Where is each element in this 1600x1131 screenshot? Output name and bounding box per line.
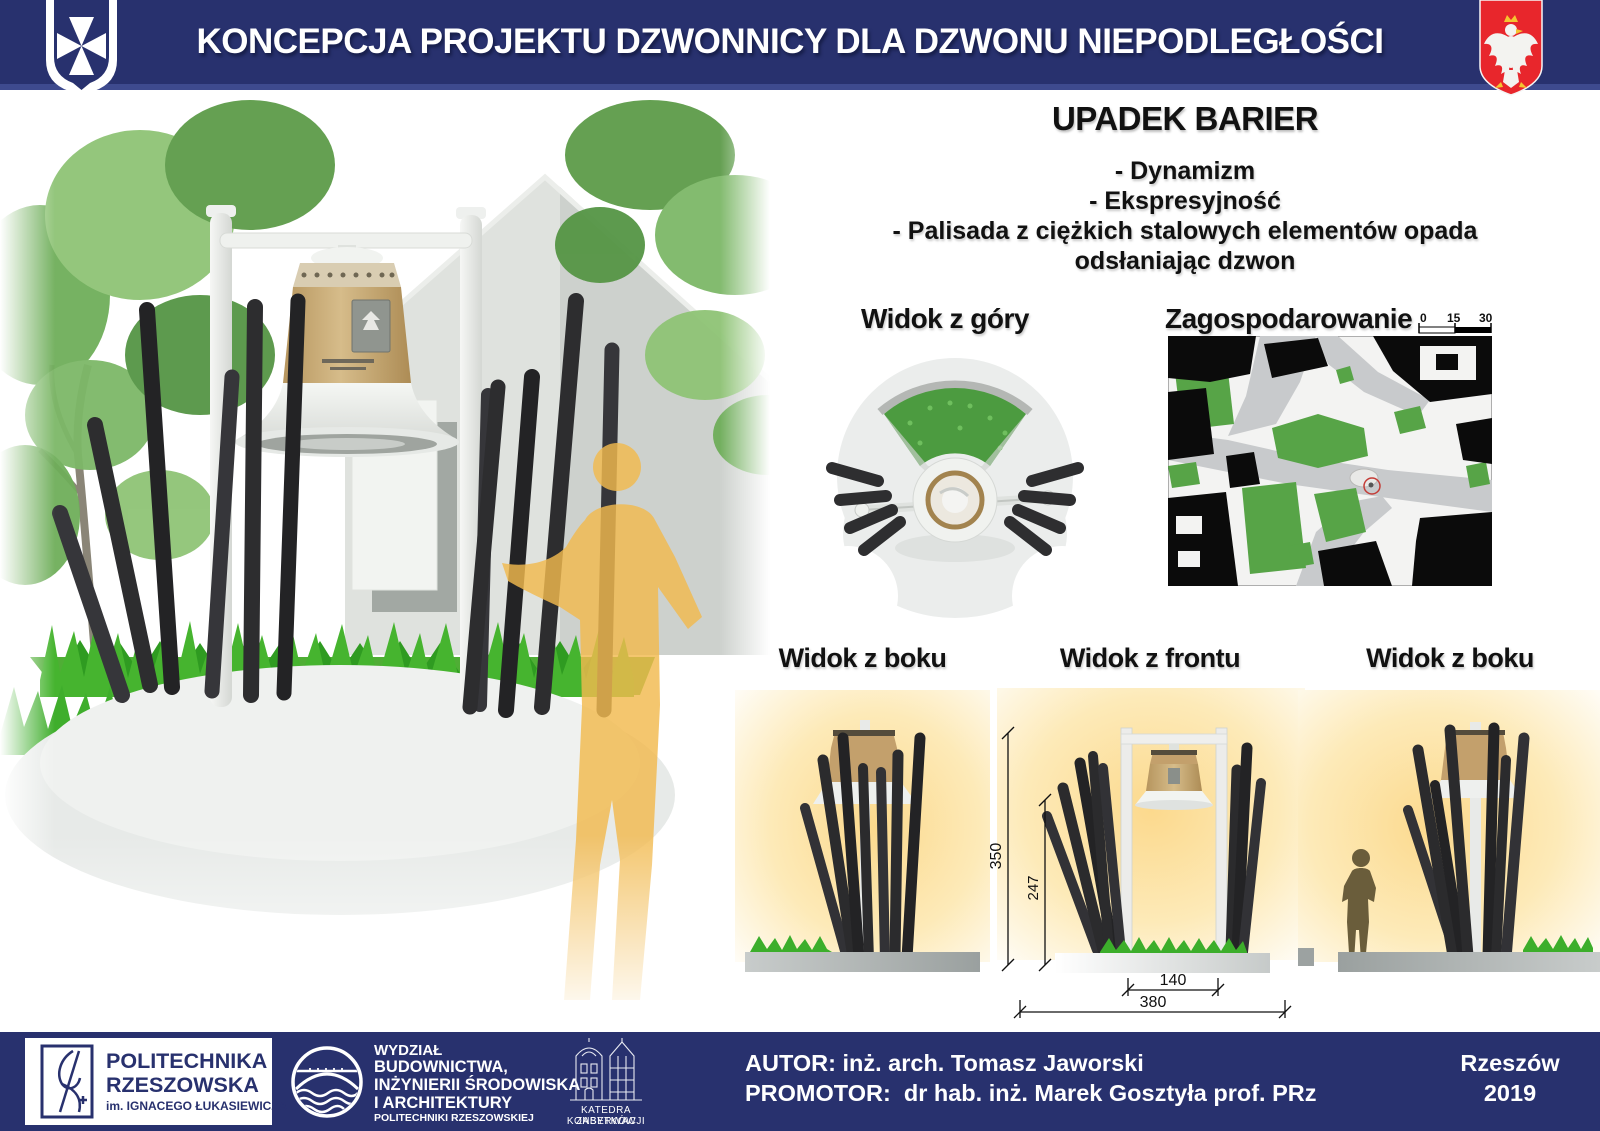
rzeszow-shield-icon bbox=[44, 0, 119, 102]
top-view-label: Widok z góry bbox=[800, 303, 1090, 335]
faculty-line3: INŻYNIERII ŚRODOWISKA bbox=[374, 1077, 580, 1094]
faculty-line1: WYDZIAŁ bbox=[374, 1043, 442, 1058]
site-plan-map bbox=[1168, 336, 1492, 586]
politechnika-rzeszowska-logo-icon bbox=[39, 1044, 97, 1120]
university-name-line1: POLITECHNIKA bbox=[106, 1051, 267, 1073]
dim-380: 380 bbox=[1140, 994, 1167, 1011]
fade-left bbox=[0, 95, 55, 1025]
front-view-label: Widok z frontu bbox=[995, 643, 1305, 674]
front-view-image: 350 247 140 380 bbox=[985, 688, 1305, 1023]
polish-eagle-icon bbox=[1477, 0, 1545, 98]
svg-text:0: 0 bbox=[1420, 311, 1427, 325]
dim-140: 140 bbox=[1160, 972, 1187, 989]
dim-247: 247 bbox=[1025, 875, 1042, 900]
department-line2: ZABYTKÓW bbox=[551, 1116, 661, 1127]
concept-bullets: - Dynamizm - Ekspresyjność - Palisada z … bbox=[875, 156, 1495, 276]
main-render-image bbox=[0, 95, 770, 1025]
map-scale-bar: 0 15 30 bbox=[1416, 310, 1498, 338]
side-view-left-image bbox=[735, 690, 990, 985]
concept-title: UPADEK BARIER bbox=[770, 100, 1600, 138]
faculty-line2: BUDOWNICTWA, bbox=[374, 1059, 508, 1076]
side-view-left-label: Widok z boku bbox=[735, 643, 990, 674]
dim-350: 350 bbox=[988, 843, 1005, 870]
city: Rzeszów bbox=[1445, 1048, 1575, 1078]
poster: KONCEPCJA PROJEKTU DZWONNICY DLA DZWONU … bbox=[0, 0, 1600, 1131]
page-title: KONCEPCJA PROJEKTU DZWONNICY DLA DZWONU … bbox=[150, 22, 1430, 62]
svg-text:15: 15 bbox=[1447, 311, 1461, 325]
place-and-year: Rzeszów 2019 bbox=[1445, 1048, 1575, 1108]
site-plan-label: Zagospodarowanie bbox=[1165, 303, 1412, 335]
svg-text:30: 30 bbox=[1479, 311, 1493, 325]
department-logo-icon bbox=[558, 1038, 654, 1104]
top-view-image bbox=[800, 348, 1110, 628]
faculty-logo-icon bbox=[288, 1043, 366, 1121]
bullet-palisada: - Palisada z ciężkich stalowych elementó… bbox=[875, 216, 1495, 276]
fade-bottom bbox=[0, 835, 770, 1025]
university-name-line3: im. IGNACEGO ŁUKASIEWICZA bbox=[106, 1100, 287, 1112]
promotor-line: PROMOTOR: dr hab. inż. Marek Gosztyła pr… bbox=[745, 1080, 1316, 1107]
faculty-line5: POLITECHNIKI RZESZOWSKIEJ bbox=[374, 1113, 534, 1124]
faculty-line4: I ARCHITEKTURY bbox=[374, 1095, 512, 1112]
side-view-right-image bbox=[1298, 690, 1600, 985]
year: 2019 bbox=[1445, 1078, 1575, 1108]
author-line: AUTOR: inż. arch. Tomasz Jaworski bbox=[745, 1050, 1144, 1077]
side-view-right-label: Widok z boku bbox=[1300, 643, 1600, 674]
university-name-line2: RZESZOWSKA bbox=[106, 1075, 259, 1097]
bullet-ekspresyjnosc: - Ekspresyjność bbox=[875, 186, 1495, 216]
bullet-dynamizm: - Dynamizm bbox=[875, 156, 1495, 186]
